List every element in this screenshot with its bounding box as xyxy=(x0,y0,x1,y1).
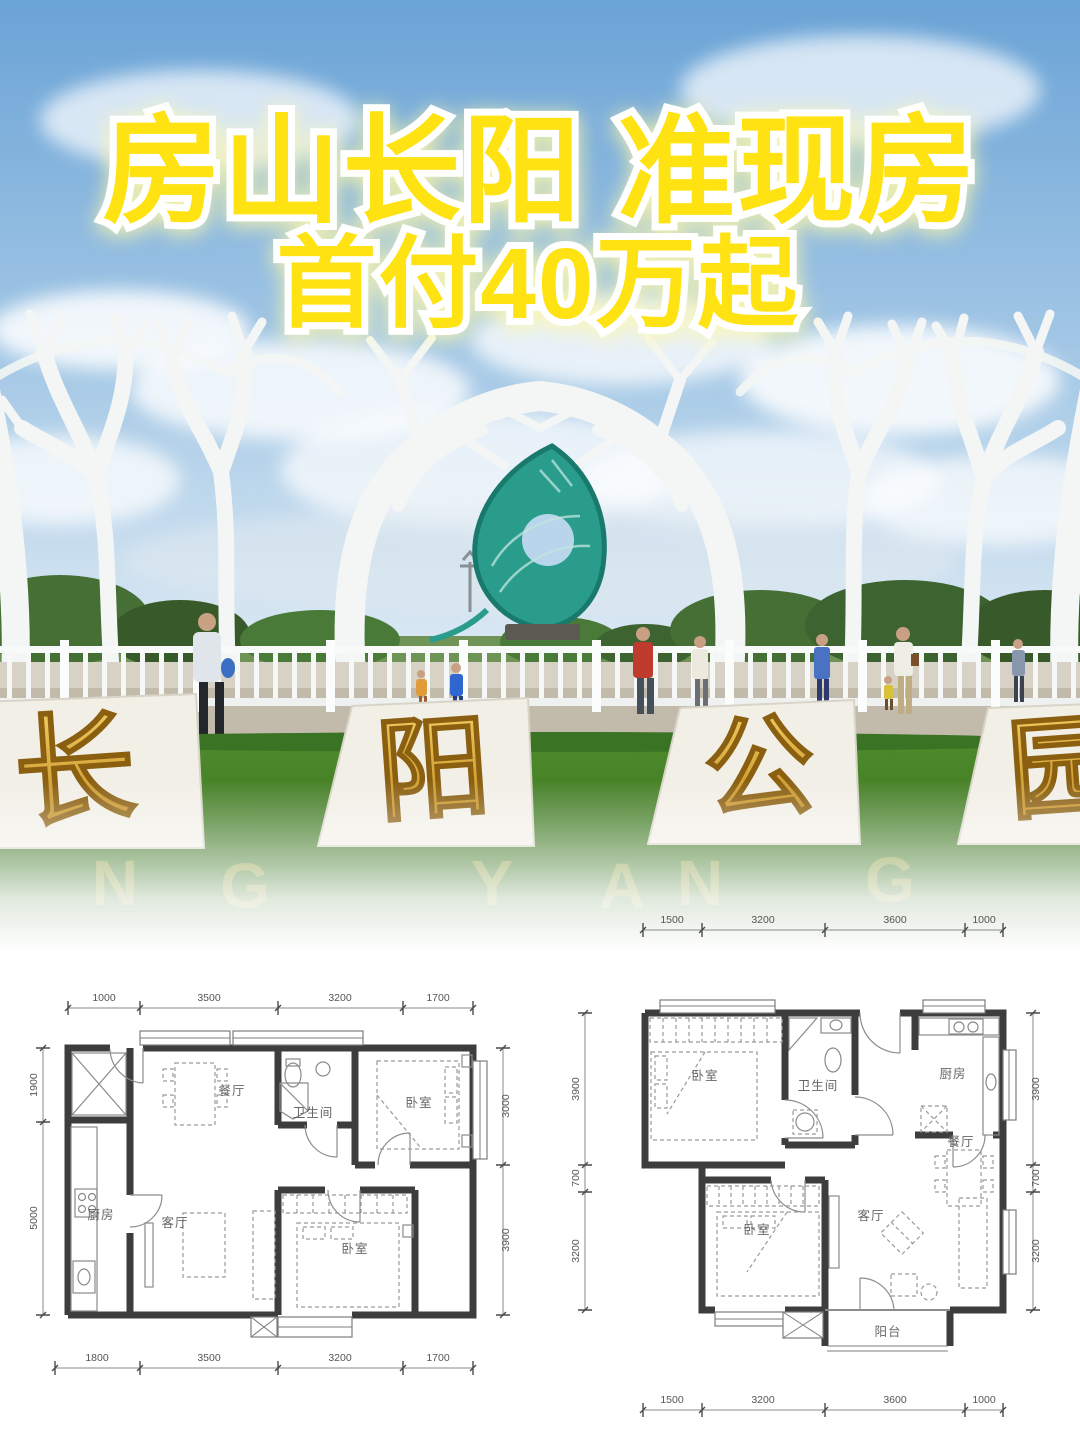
dim-label: 5000 xyxy=(28,1206,40,1230)
room-label-bedroom-top: 卧室 xyxy=(691,1068,718,1083)
left-plan-room-labels: 餐厅 卫生间 卧室 厨房 客厅 卧室 xyxy=(87,1083,432,1256)
dim-label: 3200 xyxy=(328,1352,352,1364)
room-label-bathroom: 卫生间 xyxy=(293,1106,334,1120)
dim-label: 3000 xyxy=(500,1094,512,1118)
left-plan-walls xyxy=(68,1048,473,1315)
dim-label: 1900 xyxy=(28,1073,40,1097)
headline: 房山长阳 准现房 首付40万起 xyxy=(0,0,1080,340)
dim-label: 3200 xyxy=(751,1394,775,1406)
dim-label: 1000 xyxy=(92,992,116,1004)
dim-label: 1800 xyxy=(85,1352,109,1364)
dim-label: 3500 xyxy=(197,1352,221,1364)
room-label-kitchen: 厨房 xyxy=(87,1207,114,1222)
right-plan-walls xyxy=(645,1013,1003,1351)
dim-label: 3900 xyxy=(500,1228,512,1252)
room-label-balcony: 阳台 xyxy=(874,1324,901,1339)
dim-label: 3200 xyxy=(570,1239,582,1263)
floorplan-right: 1500 3200 3600 1000 1500 3200 3600 1000 … xyxy=(555,900,1070,1440)
room-label-bathroom: 卫生间 xyxy=(798,1079,839,1093)
right-plan-dimensions: 1500 3200 3600 1000 1500 3200 3600 1000 … xyxy=(570,914,1042,1417)
dim-label: 1000 xyxy=(972,1394,996,1406)
room-label-living: 客厅 xyxy=(161,1215,188,1230)
room-label-living: 客厅 xyxy=(857,1208,884,1223)
dim-label: 1500 xyxy=(660,1394,684,1406)
right-plan-room-labels: 卧室 卫生间 厨房 餐厅 卧室 客厅 阳台 xyxy=(691,1066,974,1339)
dim-label: 3200 xyxy=(328,992,352,1004)
dim-label: 1000 xyxy=(972,914,996,926)
dim-label: 3200 xyxy=(751,914,775,926)
room-label-dining: 餐厅 xyxy=(218,1083,245,1098)
room-label-bedroom-bottom: 卧室 xyxy=(743,1222,770,1237)
dim-label: 3900 xyxy=(1030,1077,1042,1101)
dim-label: 3500 xyxy=(197,992,221,1004)
room-label-dining: 餐厅 xyxy=(947,1134,974,1149)
right-plan-doors xyxy=(771,1013,985,1310)
dim-label: 700 xyxy=(1030,1169,1042,1187)
headline-line1: 房山长阳 准现房 xyxy=(103,106,978,238)
left-plan-windows xyxy=(140,1031,487,1337)
dim-label: 3200 xyxy=(1030,1239,1042,1263)
left-plan-doors xyxy=(110,1048,410,1227)
real-estate-poster: 长 阳 公 园 N G Y A N G 房山长 xyxy=(0,0,1080,1440)
headline-line2: 首付40万起 xyxy=(276,228,799,340)
dim-label: 700 xyxy=(570,1169,582,1187)
dim-label: 1700 xyxy=(426,1352,450,1364)
dim-label: 3600 xyxy=(883,1394,907,1406)
room-label-bedroom-bottom: 卧室 xyxy=(341,1241,368,1256)
room-label-bedroom-top: 卧室 xyxy=(405,1095,432,1110)
dim-label: 1500 xyxy=(660,914,684,926)
floorplan-left: 1000 3500 3200 1700 1800 3500 3200 1700 … xyxy=(25,965,530,1435)
room-label-kitchen: 厨房 xyxy=(939,1066,966,1081)
dim-label: 3900 xyxy=(570,1077,582,1101)
dim-label: 3600 xyxy=(883,914,907,926)
dim-label: 1700 xyxy=(426,992,450,1004)
